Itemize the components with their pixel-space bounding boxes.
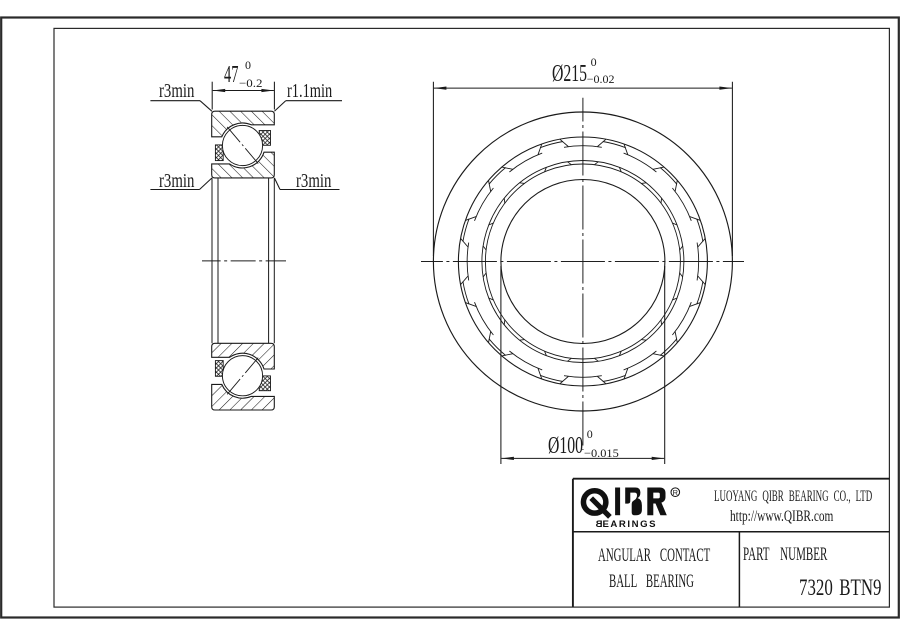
svg-text:R: R [673, 488, 678, 497]
